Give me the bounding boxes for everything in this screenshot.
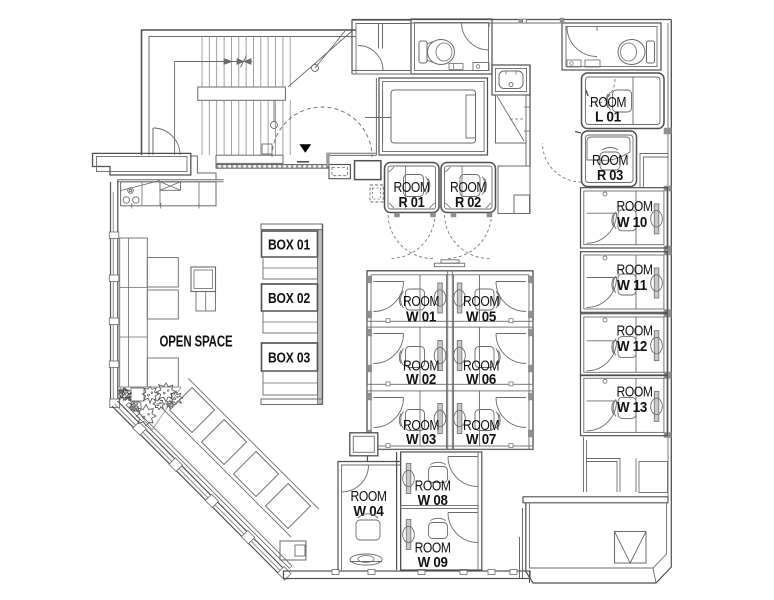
svg-text:BOX 02: BOX 02 — [268, 290, 310, 307]
svg-text:W 12: W 12 — [617, 339, 647, 355]
svg-text:L 01: L 01 — [595, 110, 621, 126]
svg-text:R 02: R 02 — [455, 195, 481, 211]
svg-text:W 10: W 10 — [617, 215, 647, 231]
svg-text:W 06: W 06 — [466, 372, 496, 388]
svg-text:ROOM: ROOM — [592, 153, 628, 169]
svg-text:R 01: R 01 — [399, 195, 425, 211]
svg-text:W 08: W 08 — [418, 493, 448, 509]
svg-text:W 02: W 02 — [406, 372, 436, 388]
svg-text:W 01: W 01 — [406, 310, 436, 326]
svg-text:ROOM: ROOM — [450, 180, 486, 196]
svg-text:W 07: W 07 — [466, 432, 496, 448]
svg-text:ROOM: ROOM — [463, 294, 499, 310]
svg-text:ROOM: ROOM — [617, 324, 653, 340]
svg-text:ROOM: ROOM — [351, 489, 387, 505]
svg-text:ROOM: ROOM — [394, 180, 430, 196]
svg-text:ROOM: ROOM — [617, 263, 653, 279]
svg-text:ROOM: ROOM — [617, 385, 653, 401]
svg-text:W 13: W 13 — [617, 400, 647, 416]
svg-text:W 03: W 03 — [406, 432, 436, 448]
svg-text:BOX 03: BOX 03 — [268, 350, 310, 367]
svg-text:ROOM: ROOM — [403, 294, 439, 310]
svg-text:W 09: W 09 — [418, 555, 448, 571]
svg-text:W 05: W 05 — [466, 310, 496, 326]
svg-text:W 11: W 11 — [617, 278, 647, 294]
svg-text:OPEN SPACE: OPEN SPACE — [160, 334, 233, 351]
svg-text:ROOM: ROOM — [617, 199, 653, 215]
svg-text:R 03: R 03 — [597, 168, 623, 184]
svg-text:BOX 01: BOX 01 — [268, 237, 311, 254]
